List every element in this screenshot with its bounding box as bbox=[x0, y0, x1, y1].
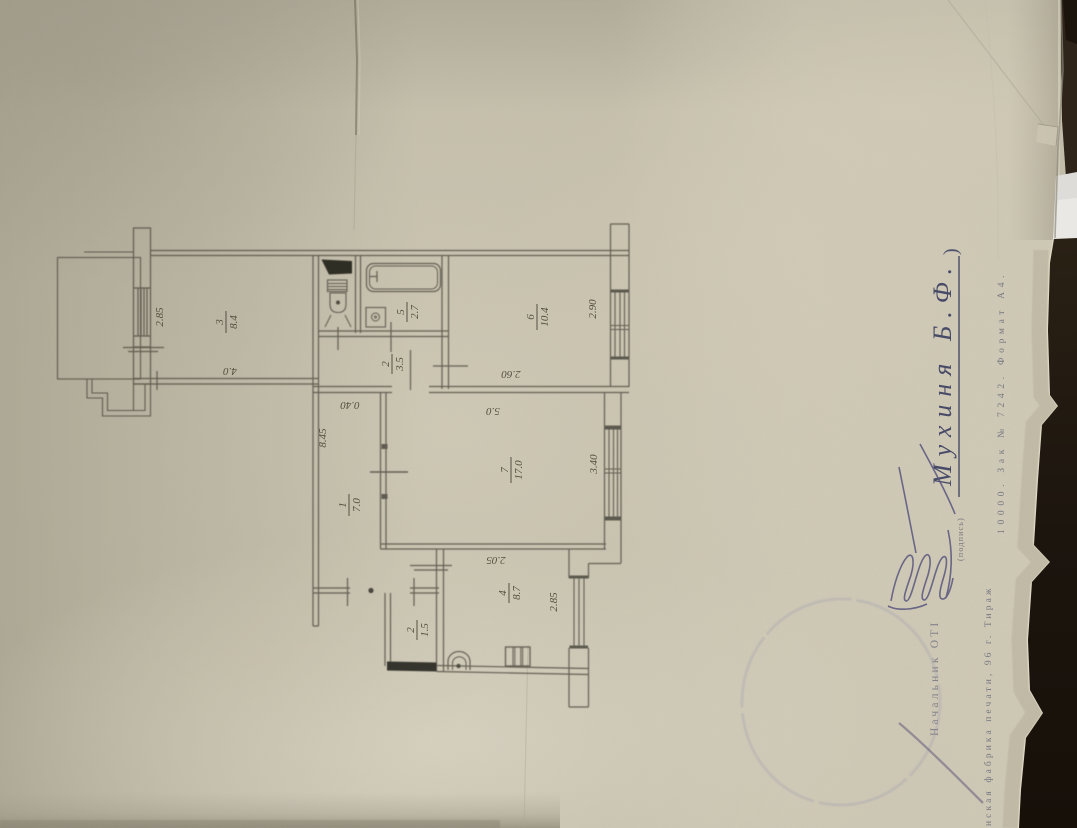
svg-text:2.85: 2.85 bbox=[154, 307, 166, 327]
svg-text:10000. Зак № 7242. Формат А4.: 10000. Зак № 7242. Формат А4. bbox=[997, 271, 1007, 534]
svg-text:2.90: 2.90 bbox=[587, 299, 599, 319]
svg-text:0.40: 0.40 bbox=[340, 399, 360, 411]
svg-text:3.5: 3.5 bbox=[394, 357, 406, 372]
svg-text:8.7: 8.7 bbox=[511, 586, 523, 600]
svg-text:(подпись): (подпись) bbox=[956, 517, 965, 561]
svg-text:3.40: 3.40 bbox=[588, 454, 600, 475]
svg-text:7: 7 bbox=[499, 467, 511, 473]
svg-text:2.85: 2.85 bbox=[548, 592, 560, 612]
svg-text:6: 6 bbox=[525, 314, 537, 320]
svg-text:Мухиня Б.Ф.: Мухиня Б.Ф. bbox=[928, 260, 957, 487]
svg-text:нская фабрика печати, 96 г. Ти: нская фабрика печати, 96 г. Тираж bbox=[983, 585, 994, 826]
svg-text:2.7: 2.7 bbox=[409, 305, 421, 319]
svg-text:3: 3 bbox=[214, 319, 226, 326]
svg-text:4.0: 4.0 bbox=[223, 365, 237, 377]
svg-text:5.0: 5.0 bbox=[486, 405, 500, 417]
svg-text:17.0: 17.0 bbox=[513, 460, 525, 480]
svg-text:5: 5 bbox=[395, 309, 407, 315]
svg-text:10.4: 10.4 bbox=[539, 307, 551, 327]
svg-text:1.5: 1.5 bbox=[419, 623, 431, 637]
svg-text:8.45: 8.45 bbox=[317, 428, 329, 448]
svg-text:2: 2 bbox=[380, 361, 392, 367]
svg-text:8.4: 8.4 bbox=[228, 315, 240, 329]
svg-text:1: 1 bbox=[337, 502, 349, 508]
svg-text:2: 2 bbox=[405, 627, 417, 633]
svg-text:2.05: 2.05 bbox=[486, 554, 506, 566]
svg-text:4: 4 bbox=[497, 590, 509, 596]
svg-text:2.60: 2.60 bbox=[501, 368, 521, 380]
svg-text:7.0: 7.0 bbox=[351, 498, 363, 512]
svg-text:): ) bbox=[940, 248, 962, 255]
